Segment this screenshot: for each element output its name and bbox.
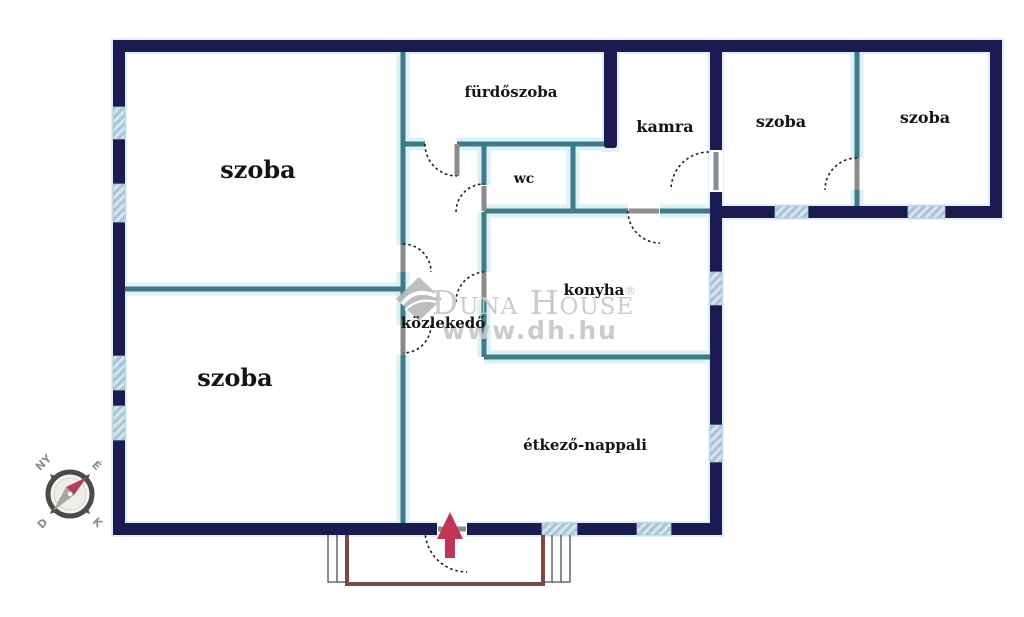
window [908,206,945,218]
window [710,425,722,462]
compass-label-west: NY [33,451,55,473]
room-label-wc: wc [513,171,535,187]
room-label-bathroom: fürdőszoba [465,83,558,101]
room-label-kitchen: konyha [564,281,625,299]
compass-label-south: D [35,516,51,532]
room-label-szoba-right-2: szoba [900,108,950,127]
window [113,107,125,139]
room-label-pantry: kamra [636,117,693,136]
window [775,206,808,218]
window [710,272,722,305]
window [637,523,671,535]
compass-label-east: K [90,515,106,531]
floor-plan: NY É D K Duna House ® www.dh.hu szoba sz… [0,0,1024,617]
room-label-szoba-right-1: szoba [756,112,806,131]
room-label-szoba-bottom-left: szoba [197,363,272,392]
watermark-registered: ® [624,284,636,298]
room-label-living-dining: étkező-nappali [523,436,647,454]
window [113,406,125,440]
room-label-hallway: közlekedő [401,314,486,332]
compass-label-north: É [89,458,104,473]
window [113,356,125,390]
entrance-arrow-icon [437,512,463,558]
room-label-szoba-top-left: szoba [220,155,295,184]
compass-rose-icon: NY É D K [33,451,105,531]
window [542,523,577,535]
floor-plan-page: NY É D K Duna House ® www.dh.hu szoba sz… [0,0,1024,617]
window [113,184,125,222]
